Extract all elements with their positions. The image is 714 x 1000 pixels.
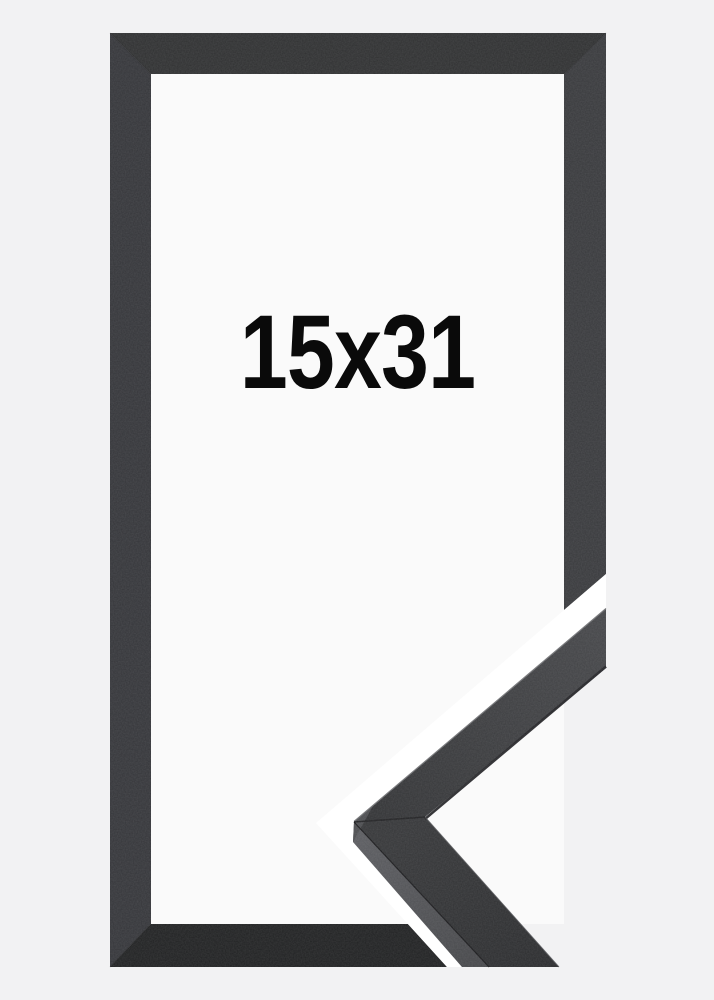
size-label-text: 15x31: [239, 300, 474, 405]
frame-graphic: [0, 0, 714, 1000]
size-label: 15x31: [0, 300, 714, 405]
product-image-frame: 15x31: [0, 0, 714, 1000]
